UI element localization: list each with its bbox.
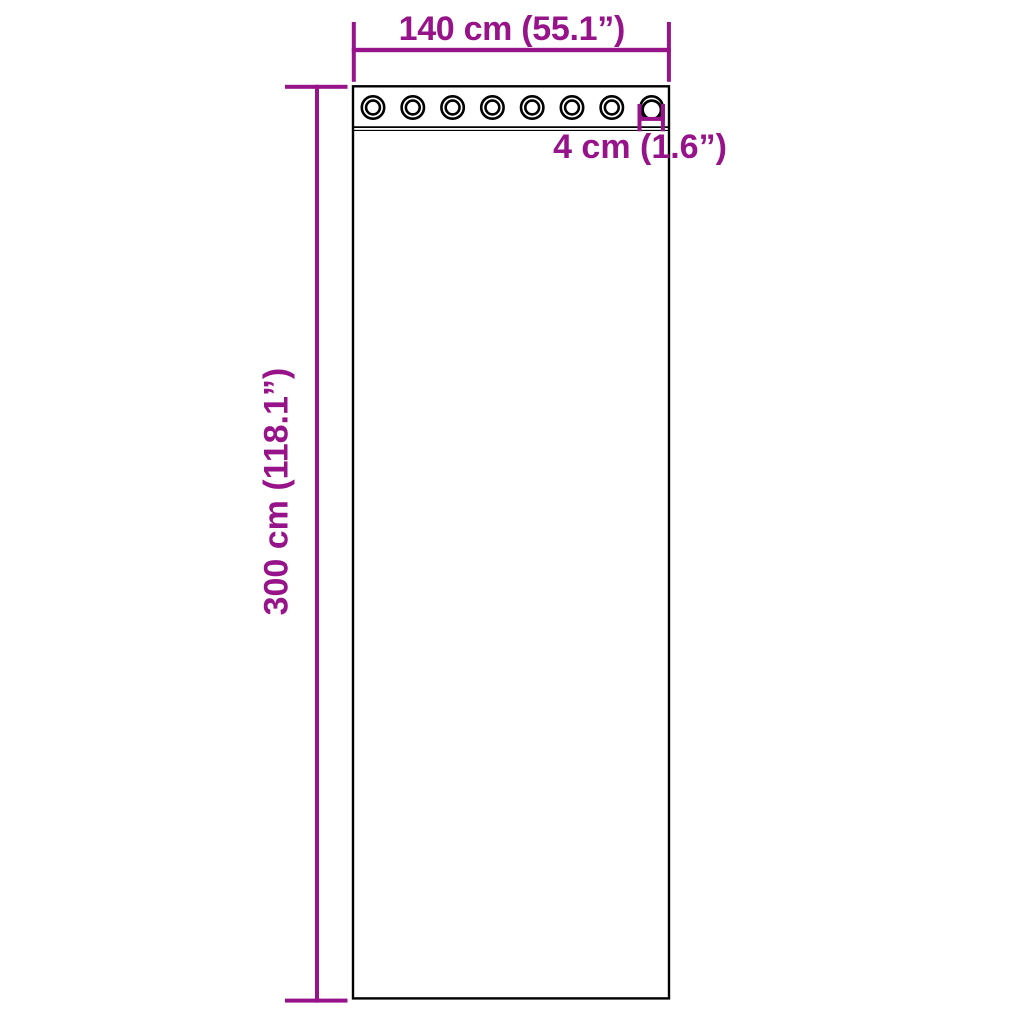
svg-text:4 cm (1.6”): 4 cm (1.6”) bbox=[553, 128, 727, 166]
svg-text:140 cm (55.1”): 140 cm (55.1”) bbox=[399, 10, 625, 48]
svg-text:300 cm (118.1”): 300 cm (118.1”) bbox=[257, 368, 295, 616]
